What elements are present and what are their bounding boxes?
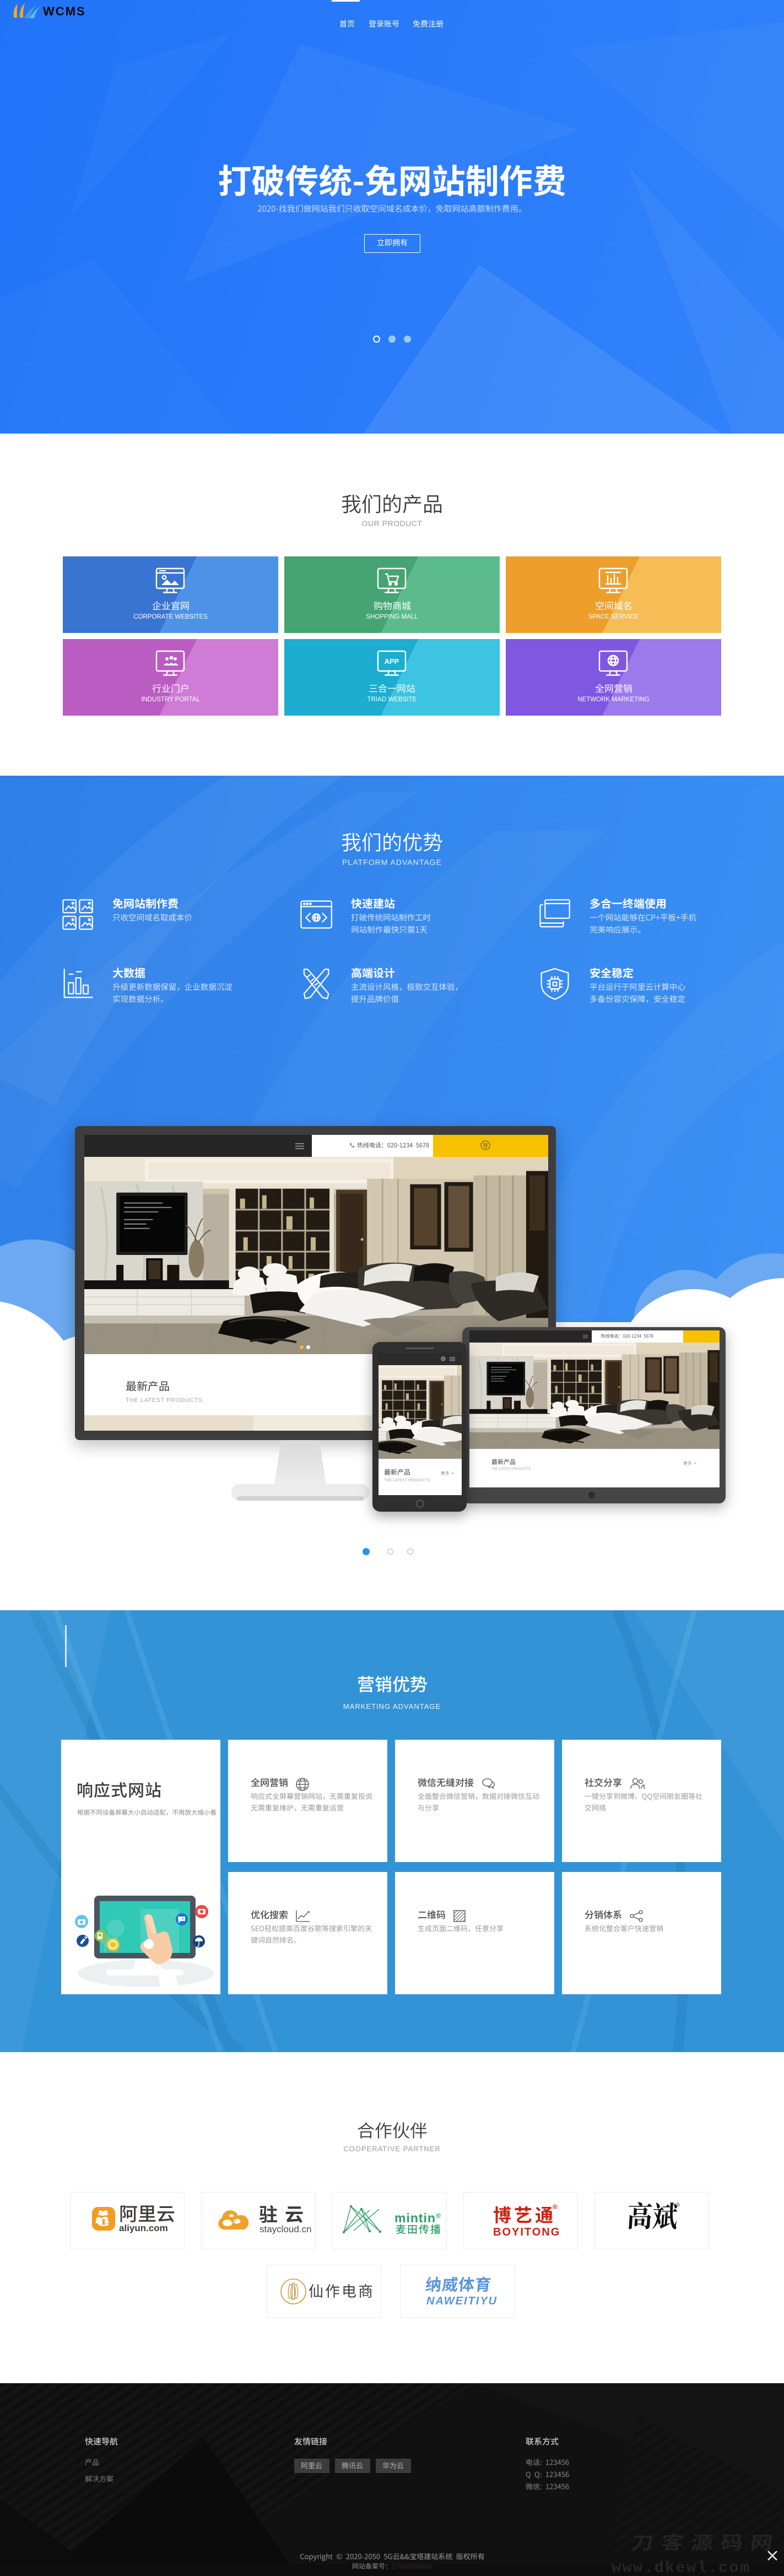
svg-text:APP: APP [385,657,399,665]
